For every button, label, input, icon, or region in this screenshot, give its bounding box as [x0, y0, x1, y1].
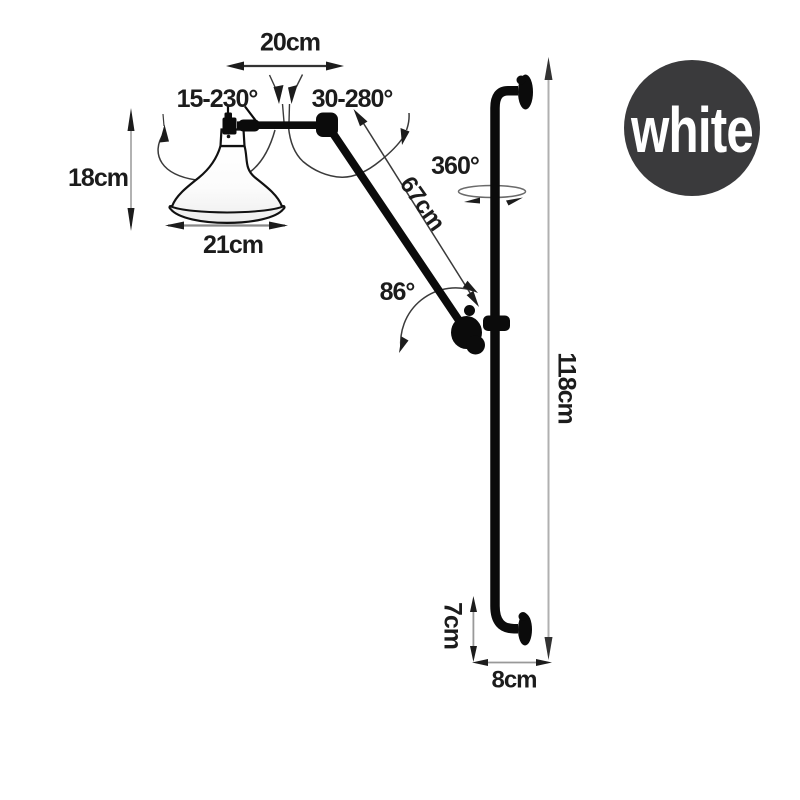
svg-text:21cm: 21cm: [203, 231, 263, 259]
svg-text:360°: 360°: [431, 152, 479, 180]
svg-text:20cm: 20cm: [260, 29, 320, 57]
svg-text:7cm: 7cm: [439, 602, 467, 649]
svg-text:30-280°: 30-280°: [312, 85, 393, 113]
svg-text:18cm: 18cm: [68, 164, 128, 192]
svg-text:86°: 86°: [380, 278, 415, 306]
svg-text:8cm: 8cm: [491, 667, 536, 694]
svg-text:118cm: 118cm: [553, 352, 581, 423]
svg-text:white: white: [630, 95, 753, 167]
svg-text:15-230°: 15-230°: [177, 85, 258, 113]
